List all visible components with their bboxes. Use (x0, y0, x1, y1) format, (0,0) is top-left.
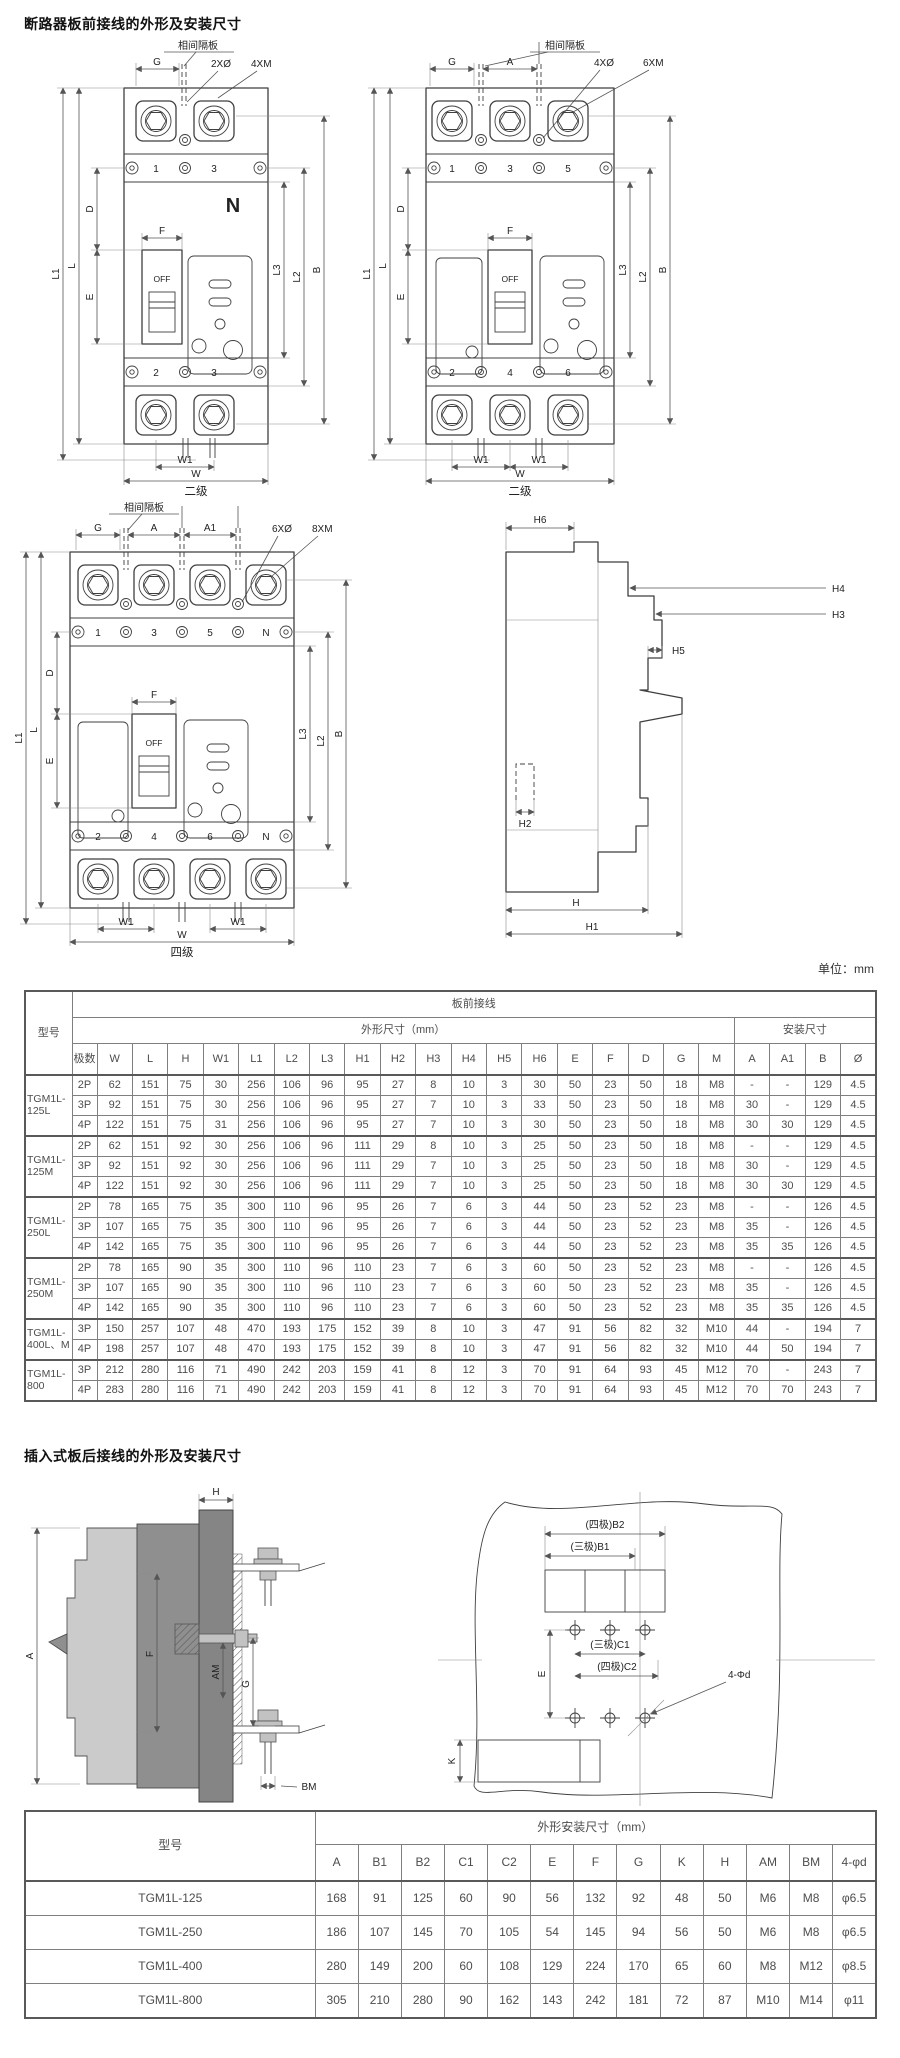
table-cell: 198 (97, 1340, 132, 1361)
dim-h1: H1 (586, 922, 599, 933)
table-cell: 94 (617, 1916, 660, 1950)
table-cell: 56 (660, 1916, 703, 1950)
table-cell: - (770, 1218, 805, 1238)
dim-h3: H3 (832, 610, 845, 621)
dim-l2: L2 (292, 271, 303, 283)
terminal-2: 2 (153, 368, 159, 379)
table-cell: - (770, 1360, 805, 1381)
table-cell: 96 (309, 1157, 344, 1177)
table-cell: 96 (309, 1075, 344, 1096)
table-row: TGM1L-400280149200601081292241706560M8M1… (25, 1950, 876, 1984)
col-header-model: 型号 (25, 991, 72, 1075)
table-cell: 52 (628, 1279, 663, 1299)
table-cell: M8 (699, 1136, 734, 1157)
table-cell: 90 (168, 1258, 203, 1279)
col-header: Ø (841, 1044, 876, 1076)
table-cell: 91 (557, 1340, 592, 1361)
table-cell: - (770, 1258, 805, 1279)
dim-l1: L1 (14, 732, 25, 744)
table-cell: φ6.5 (833, 1881, 876, 1916)
table-cell: 3 (486, 1319, 521, 1340)
table-cell: 48 (203, 1340, 238, 1361)
table-cell: 175 (309, 1319, 344, 1340)
table-cell: 29 (380, 1157, 415, 1177)
table-cell: 91 (358, 1881, 401, 1916)
table-cell: 96 (309, 1197, 344, 1218)
table-cell: 27 (380, 1116, 415, 1137)
table-cell: 107 (358, 1916, 401, 1950)
table-cell: 283 (97, 1381, 132, 1402)
table-cell: 165 (132, 1258, 167, 1279)
table-cell: 4.5 (841, 1258, 876, 1279)
poles-cell: 3P (72, 1218, 97, 1238)
dim-w1: W1 (119, 917, 134, 928)
table-cell: 90 (168, 1279, 203, 1299)
dim-d: D (396, 205, 407, 212)
terminal-6: 6 (565, 368, 571, 379)
table-cell: 70 (734, 1381, 769, 1402)
table-cell: 23 (593, 1258, 628, 1279)
dim-l1: L1 (51, 268, 62, 280)
poles-cell: 3P (72, 1279, 97, 1299)
table-cell: 256 (239, 1177, 274, 1198)
table-cell: 10 (451, 1319, 486, 1340)
table-cell: M8 (699, 1116, 734, 1137)
table-cell: 44 (734, 1340, 769, 1361)
screws-callout: 8XM (312, 524, 333, 535)
table-cell: 35 (203, 1279, 238, 1299)
table-cell: 12 (451, 1360, 486, 1381)
table-cell: 107 (168, 1340, 203, 1361)
dim-w: W (177, 930, 187, 941)
table-cell: 23 (380, 1258, 415, 1279)
table-cell: 35 (734, 1299, 769, 1320)
table-cell: 96 (309, 1279, 344, 1299)
poles-cell: 4P (72, 1340, 97, 1361)
table-cell: 35 (734, 1279, 769, 1299)
table-cell: 60 (522, 1279, 557, 1299)
table-cell: 50 (703, 1916, 746, 1950)
table-cell: 165 (132, 1238, 167, 1259)
dim-l3: L3 (272, 264, 283, 276)
table-cell: 3 (486, 1340, 521, 1361)
table-cell: 29 (380, 1177, 415, 1198)
table-cell: 10 (451, 1075, 486, 1096)
dim-w: W (191, 469, 201, 480)
table-cell: 4.5 (841, 1096, 876, 1116)
front-wiring-table-wrap: 型号 板前接线 外形尺寸（mm） 安装尺寸 极数 WLHW1L1L2L3H1H2… (24, 990, 877, 1402)
table-cell: - (770, 1096, 805, 1116)
dim-b2: (四极)B2 (586, 1518, 625, 1531)
page-title: 断路器板前接线的外形及安装尺寸 (24, 14, 242, 34)
table-cell: 70 (522, 1360, 557, 1381)
table-row: 3P107165903530011096110237636050235223M8… (25, 1279, 876, 1299)
table-cell: M8 (699, 1238, 734, 1259)
table-cell: 149 (358, 1950, 401, 1984)
table-cell: 87 (703, 1984, 746, 2019)
dim-l: L (378, 263, 389, 269)
table-cell: M8 (746, 1950, 789, 1984)
off-label: OFF (502, 274, 519, 284)
partition-label: 相间隔板 (124, 501, 164, 514)
table-cell: 116 (168, 1360, 203, 1381)
col-header: A (315, 1845, 358, 1882)
table-cell: 18 (664, 1177, 699, 1198)
table-cell: - (734, 1136, 769, 1157)
table-cell: 126 (805, 1218, 840, 1238)
table-cell: 106 (274, 1177, 309, 1198)
front-wiring-table-body: TGM1L-125L2P6215175302561069695278103305… (25, 1075, 876, 1401)
table-cell: 35 (203, 1218, 238, 1238)
table-cell: M12 (699, 1381, 734, 1402)
terminal-bottom-3: 3 (211, 368, 217, 379)
poles-cell: 4P (72, 1116, 97, 1137)
table-cell: 35 (203, 1197, 238, 1218)
table-cell: 3 (486, 1299, 521, 1320)
poles-cell: 2P (72, 1197, 97, 1218)
table-cell: 129 (805, 1136, 840, 1157)
table-cell: 8 (416, 1136, 451, 1157)
table-cell: 8 (416, 1360, 451, 1381)
group-header-mount-dims: 安装尺寸 (734, 1018, 876, 1044)
table-cell: 35 (770, 1299, 805, 1320)
table-cell: 305 (315, 1984, 358, 2019)
table-cell: 107 (168, 1319, 203, 1340)
table-cell: 7 (841, 1360, 876, 1381)
neutral-mark: N (226, 195, 240, 217)
table-cell: 29 (380, 1136, 415, 1157)
col-header: BM (790, 1845, 833, 1882)
table-cell: 60 (444, 1950, 487, 1984)
table-cell: 151 (132, 1116, 167, 1137)
table-cell: 10 (451, 1157, 486, 1177)
table-cell: 44 (734, 1319, 769, 1340)
table-cell: 108 (488, 1950, 531, 1984)
table-cell: 4.5 (841, 1218, 876, 1238)
table-cell: 111 (345, 1157, 380, 1177)
table-cell: 243 (805, 1360, 840, 1381)
table-cell: 96 (309, 1177, 344, 1198)
drawing-caption: 二级 (185, 485, 208, 498)
table-cell: 126 (805, 1299, 840, 1320)
dim-l2: L2 (638, 271, 649, 283)
col-header: A (734, 1044, 769, 1076)
col-header: C1 (444, 1845, 487, 1882)
table-cell: 47 (522, 1319, 557, 1340)
table-cell: 25 (522, 1136, 557, 1157)
table-cell: 30 (734, 1116, 769, 1137)
table-cell: 52 (628, 1299, 663, 1320)
table-cell: 18 (664, 1075, 699, 1096)
table-cell: φ11 (833, 1984, 876, 2019)
table-cell: 18 (664, 1116, 699, 1137)
table-cell: 110 (274, 1258, 309, 1279)
table-cell: 50 (628, 1157, 663, 1177)
table-cell: 256 (239, 1136, 274, 1157)
table-cell: 35 (770, 1238, 805, 1259)
table-cell: M12 (699, 1360, 734, 1381)
partition-label: 相间隔板 (545, 39, 585, 52)
table-cell: 129 (805, 1075, 840, 1096)
terminal-1: 1 (153, 164, 159, 175)
table-cell: M6 (746, 1916, 789, 1950)
table-cell: 41 (380, 1360, 415, 1381)
table-cell: 32 (664, 1340, 699, 1361)
table-cell: 50 (557, 1258, 592, 1279)
table-cell: 65 (660, 1950, 703, 1984)
table-cell: - (770, 1075, 805, 1096)
table-cell: 71 (203, 1381, 238, 1402)
table-cell: 95 (345, 1116, 380, 1137)
terminal-2: 2 (95, 832, 101, 843)
table-cell: 8 (416, 1075, 451, 1096)
dim-f: F (145, 1651, 156, 1657)
table-cell: 4.5 (841, 1075, 876, 1096)
table-cell: 145 (574, 1916, 617, 1950)
table-cell: 243 (805, 1381, 840, 1402)
table-cell: 3 (486, 1157, 521, 1177)
table-cell: 126 (805, 1258, 840, 1279)
col-header: A1 (770, 1044, 805, 1076)
table-row: TGM1L-125M2P6215192302561069611129810325… (25, 1136, 876, 1157)
table-cell: 300 (239, 1279, 274, 1299)
col-header: B2 (401, 1845, 444, 1882)
table-cell: 165 (132, 1197, 167, 1218)
table-cell: 490 (239, 1381, 274, 1402)
table-cell: 30 (770, 1116, 805, 1137)
table-cell: 91 (557, 1381, 592, 1402)
table-cell: 129 (805, 1177, 840, 1198)
model-cell: TGM1L-125 (25, 1881, 315, 1916)
table-cell: 3 (486, 1116, 521, 1137)
poles-cell: 3P (72, 1096, 97, 1116)
table-cell: 92 (617, 1881, 660, 1916)
table-cell: 75 (168, 1075, 203, 1096)
table-cell: 132 (574, 1881, 617, 1916)
dim-l3: L3 (618, 264, 629, 276)
table-cell: 23 (380, 1279, 415, 1299)
table-cell: 129 (531, 1950, 574, 1984)
table-cell: M10 (699, 1340, 734, 1361)
terminal-4: 4 (507, 368, 513, 379)
table-cell: M8 (699, 1258, 734, 1279)
table-cell: 96 (309, 1258, 344, 1279)
model-cell: TGM1L-250 (25, 1916, 315, 1950)
table-cell: 23 (593, 1096, 628, 1116)
table-cell: 8 (416, 1381, 451, 1402)
table-cell: M8 (699, 1218, 734, 1238)
table-cell: 490 (239, 1360, 274, 1381)
table-cell: 78 (97, 1258, 132, 1279)
col-header: M (699, 1044, 734, 1076)
holes-callout: 2XØ (211, 59, 231, 70)
table-row: TGM1L-400L、M3P15025710748470193175152398… (25, 1319, 876, 1340)
table-cell: - (770, 1197, 805, 1218)
dim-w: W (515, 469, 525, 480)
terminal-3: 3 (507, 164, 513, 175)
group-header-outline-dims: 外形尺寸（mm） (72, 1018, 734, 1044)
front-view-2p-drawing: 相间隔板 G 2XØ 4XM 1 3 N OFF F L1 L D E L3 (46, 36, 356, 498)
poles-cell: 2P (72, 1136, 97, 1157)
table-cell: 3 (486, 1218, 521, 1238)
table-cell: - (770, 1157, 805, 1177)
table-cell: 26 (380, 1197, 415, 1218)
table-cell: M8 (699, 1177, 734, 1198)
table-cell: 50 (557, 1218, 592, 1238)
table-cell: 41 (380, 1381, 415, 1402)
col-header-model: 型号 (25, 1811, 315, 1881)
table-cell: 32 (664, 1319, 699, 1340)
poles-cell: 4P (72, 1381, 97, 1402)
table-cell: 23 (380, 1299, 415, 1320)
table-cell: 280 (401, 1984, 444, 2019)
table-row: TGM1L-12516891125609056132924850M6M8φ6.5 (25, 1881, 876, 1916)
table-cell: 8 (416, 1340, 451, 1361)
col-header: H (703, 1845, 746, 1882)
dim-a: A (25, 1652, 36, 1659)
dim-h4: H4 (832, 584, 845, 595)
off-label: OFF (146, 738, 163, 748)
table-cell: φ6.5 (833, 1916, 876, 1950)
dim-h2: H2 (519, 819, 532, 830)
table-cell: 75 (168, 1238, 203, 1259)
table-cell: 7 (416, 1238, 451, 1259)
table-cell: 116 (168, 1381, 203, 1402)
dim-w1: W1 (474, 455, 489, 466)
panel-cutout-drawing: (四极)B2 (三极)B1 (三极)C1 (四极)C2 E 4-Φd K (430, 1488, 880, 1810)
table-cell: 30 (203, 1136, 238, 1157)
table-cell: 23 (664, 1299, 699, 1320)
table-cell: 93 (628, 1381, 663, 1402)
table-cell: 110 (274, 1218, 309, 1238)
drawing-caption: 二级 (509, 485, 532, 498)
rear-wiring-table-wrap: 型号 外形安装尺寸（mm） AB1B2C1C2EFGKHAMBM4-φd TGM… (24, 1810, 877, 2019)
table-cell: 23 (593, 1238, 628, 1259)
dim-h5: H5 (672, 646, 685, 657)
table-cell: 3 (486, 1381, 521, 1402)
table-cell: 50 (557, 1279, 592, 1299)
table-cell: 224 (574, 1950, 617, 1984)
dim-e: E (45, 757, 56, 764)
dim-g: G (448, 57, 456, 68)
table-cell: 3 (486, 1258, 521, 1279)
table-cell: 30 (203, 1096, 238, 1116)
dim-c1: (三极)C1 (590, 1638, 630, 1651)
table-cell: 3 (486, 1279, 521, 1299)
dim-g: G (241, 1680, 252, 1688)
table-cell: M12 (790, 1950, 833, 1984)
table-cell: 7 (416, 1299, 451, 1320)
table-cell: 50 (770, 1340, 805, 1361)
table-cell: M8 (699, 1279, 734, 1299)
table-cell: 23 (593, 1136, 628, 1157)
table-cell: 159 (345, 1381, 380, 1402)
table-row: 4P19825710748470193175152398103479156823… (25, 1340, 876, 1361)
section-title-rear-wiring: 插入式板后接线的外形及安装尺寸 (24, 1446, 242, 1466)
table-cell: 75 (168, 1218, 203, 1238)
dim-e: E (537, 1670, 548, 1677)
table-cell: 151 (132, 1136, 167, 1157)
table-cell: 6 (451, 1299, 486, 1320)
terminal-1: 1 (95, 628, 101, 639)
table-cell: 110 (274, 1279, 309, 1299)
table-cell: 193 (274, 1340, 309, 1361)
col-header: L3 (309, 1044, 344, 1076)
table-cell: 110 (274, 1197, 309, 1218)
table-row: 3P92151753025610696952771033350235018M83… (25, 1096, 876, 1116)
table-cell: 26 (380, 1218, 415, 1238)
table-cell: 70 (444, 1916, 487, 1950)
table-cell: 200 (401, 1950, 444, 1984)
terminal-1: 1 (449, 164, 455, 175)
table-cell: 95 (345, 1096, 380, 1116)
table-cell: 151 (132, 1157, 167, 1177)
table-cell: 45 (664, 1381, 699, 1402)
table-cell: 106 (274, 1075, 309, 1096)
table-cell: 35 (203, 1299, 238, 1320)
table-cell: 56 (531, 1881, 574, 1916)
table-cell: 95 (345, 1197, 380, 1218)
table-cell: 203 (309, 1360, 344, 1381)
table-cell: 300 (239, 1299, 274, 1320)
dim-l2: L2 (316, 735, 327, 747)
table-cell: 30 (203, 1157, 238, 1177)
table-cell: 90 (168, 1299, 203, 1320)
poles-cell: 4P (72, 1177, 97, 1198)
table-cell: M8 (699, 1075, 734, 1096)
model-cell: TGM1L-400L、M (25, 1319, 72, 1360)
page: { "page": { "title1": "断路器板前接线的外形及安装尺寸",… (0, 0, 900, 2058)
table-cell: 44 (522, 1238, 557, 1259)
table-cell: 23 (593, 1197, 628, 1218)
group-header-outline-mount: 外形安装尺寸（mm） (315, 1811, 876, 1845)
dim-d: D (85, 205, 96, 212)
dim-h: H (212, 1487, 219, 1498)
table-cell: 95 (345, 1075, 380, 1096)
terminal-n: N (262, 628, 269, 639)
table-cell: 18 (664, 1096, 699, 1116)
table-cell: 3 (486, 1238, 521, 1259)
table-cell: 60 (522, 1258, 557, 1279)
dim-a: A (507, 57, 514, 68)
dim-h6: H6 (534, 515, 547, 526)
table-cell: M8 (699, 1299, 734, 1320)
table-cell: 256 (239, 1157, 274, 1177)
table-cell: 30 (734, 1157, 769, 1177)
table-cell: 3 (486, 1096, 521, 1116)
table-cell: M6 (746, 1881, 789, 1916)
table-cell: 70 (734, 1360, 769, 1381)
table-cell: M8 (790, 1916, 833, 1950)
table-cell: 7 (841, 1319, 876, 1340)
table-cell: 7 (416, 1096, 451, 1116)
table-cell: 142 (97, 1299, 132, 1320)
table-cell: 50 (557, 1197, 592, 1218)
poles-cell: 4P (72, 1238, 97, 1259)
dim-d: D (45, 669, 56, 676)
col-header: C2 (488, 1845, 531, 1882)
table-cell: 23 (593, 1116, 628, 1137)
dim-b1: (三极)B1 (571, 1540, 610, 1553)
holes-callout: 6XØ (272, 524, 292, 535)
holes-callout: 4XØ (594, 58, 614, 69)
table-cell: 256 (239, 1075, 274, 1096)
table-cell: 106 (274, 1157, 309, 1177)
dim-w1: W1 (178, 455, 193, 466)
dim-l1: L1 (362, 268, 373, 280)
dim-k: K (447, 1757, 458, 1764)
table-cell: 3 (486, 1360, 521, 1381)
